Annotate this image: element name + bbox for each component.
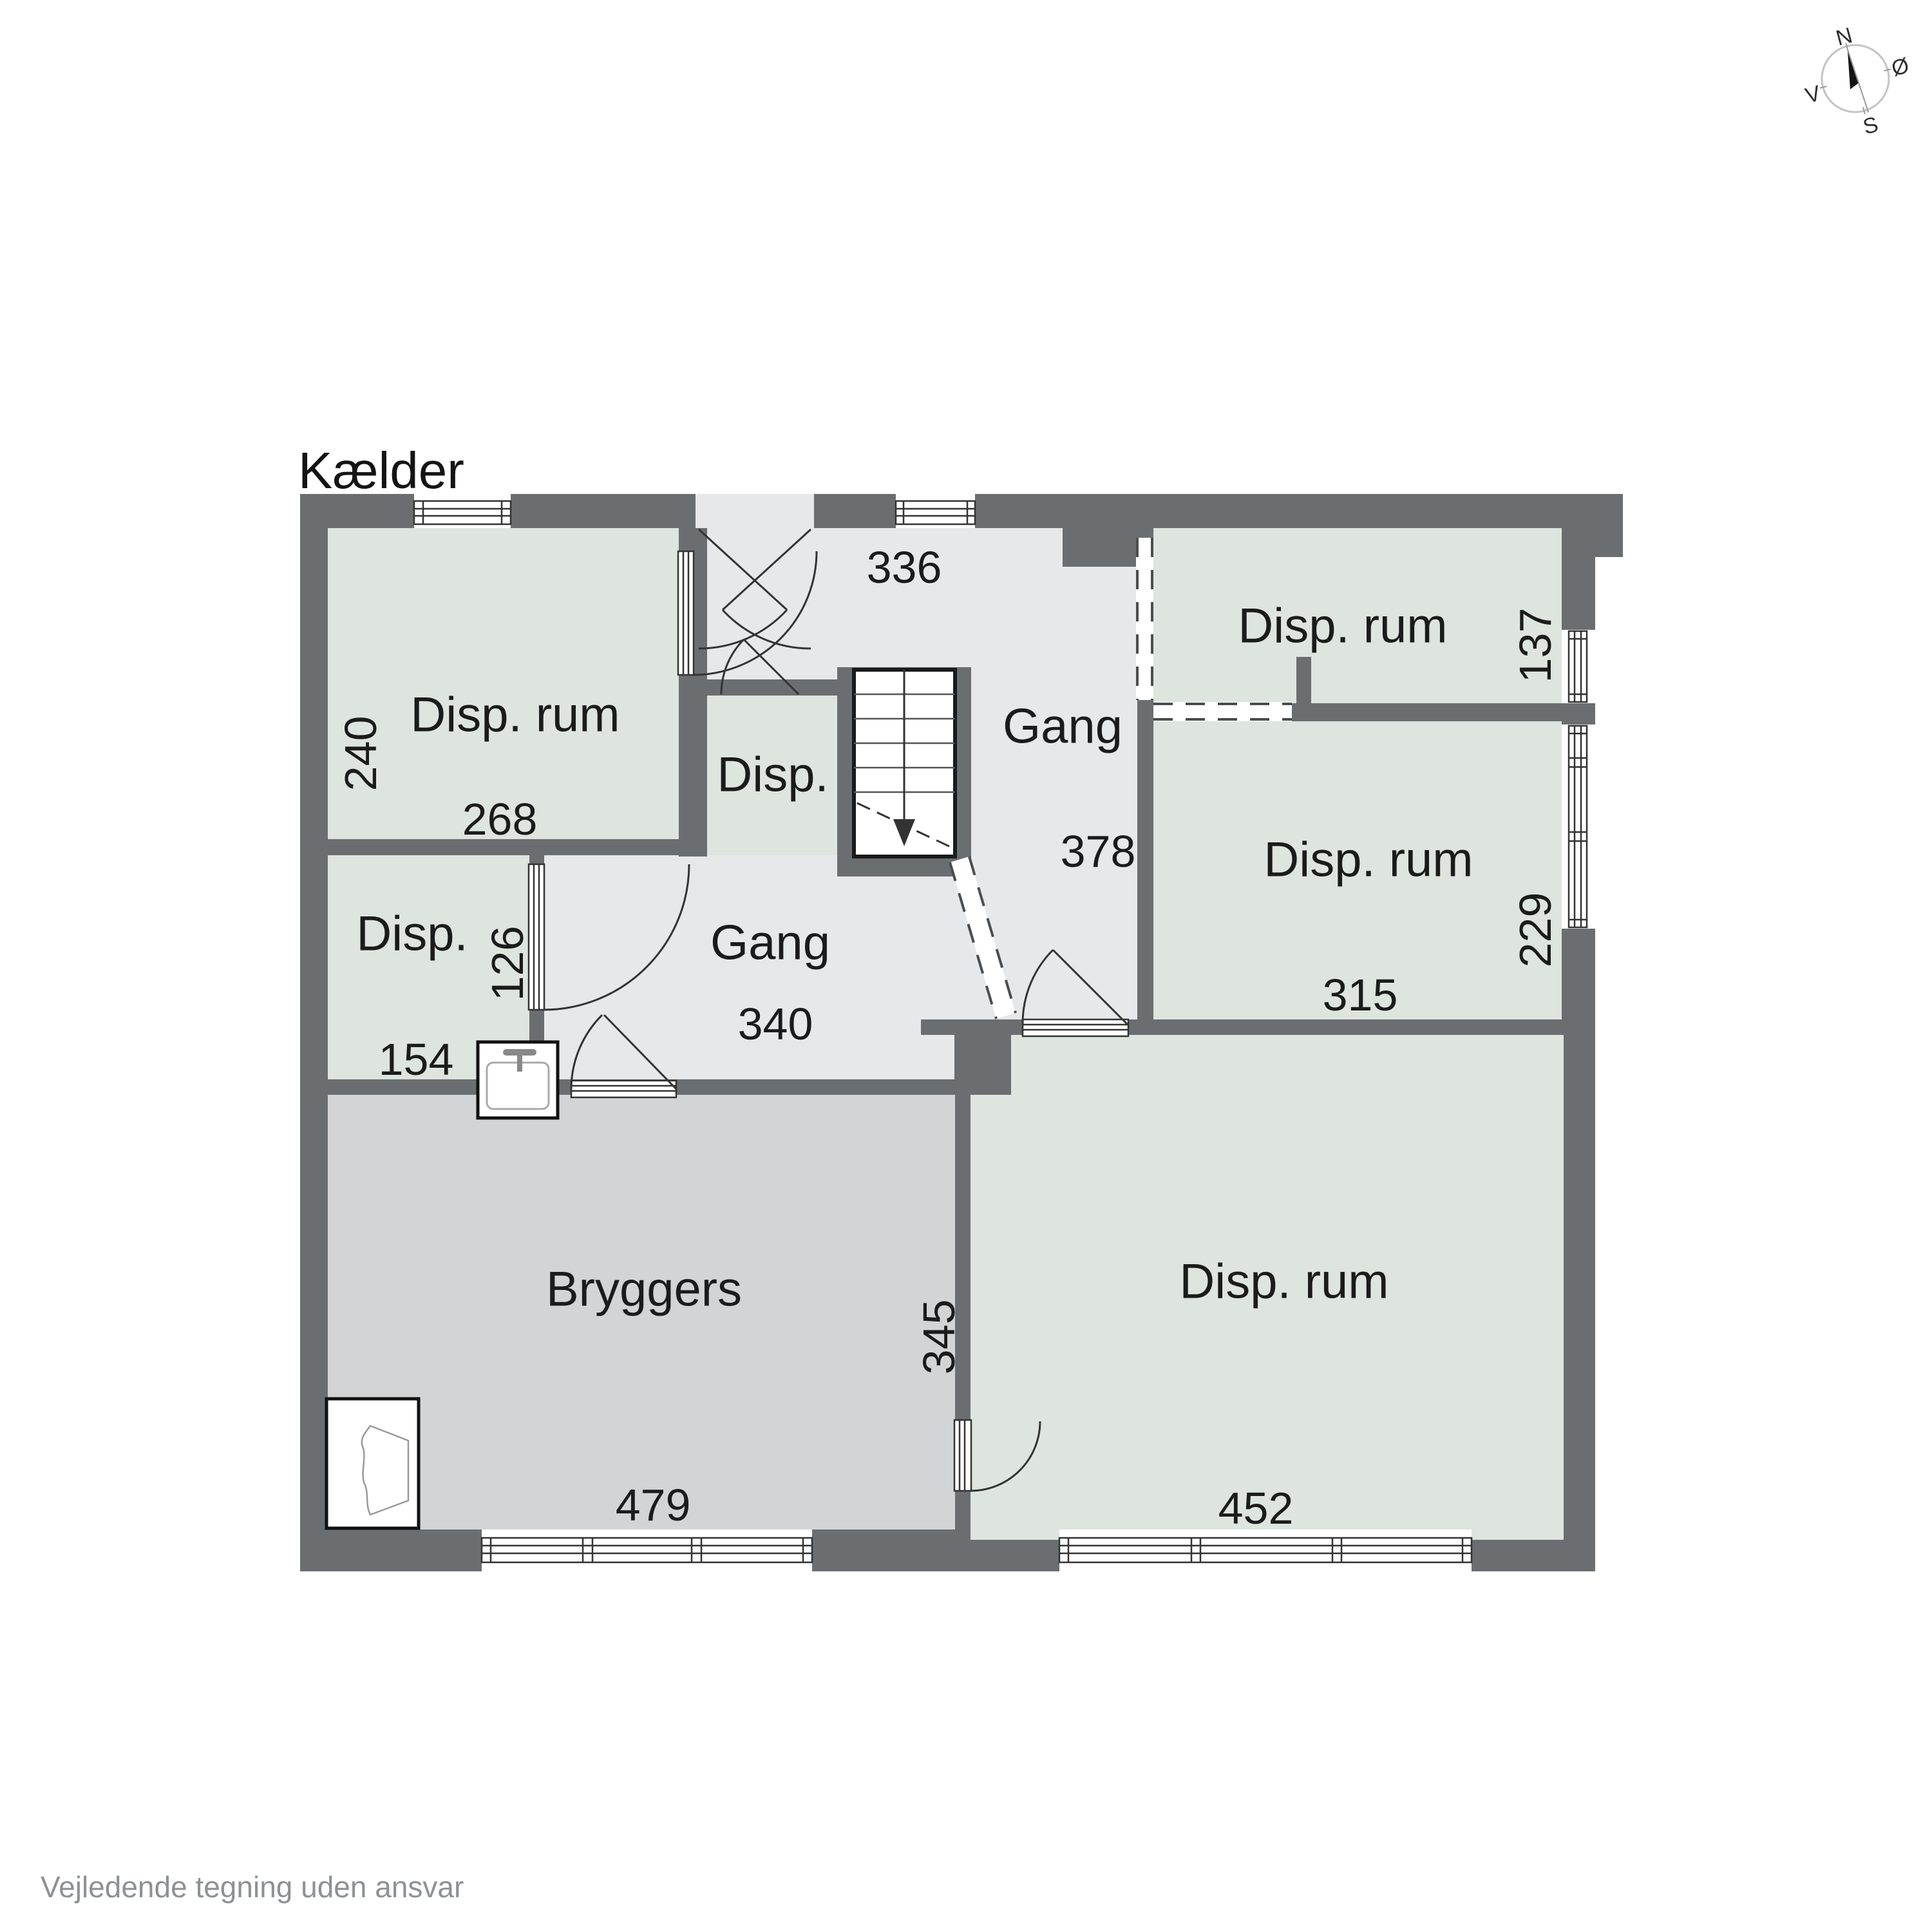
room-label-gang-upper: Gang — [1003, 699, 1122, 755]
room-label-disp-left: Disp. — [356, 906, 468, 962]
compass-east-label: Ø — [1889, 53, 1911, 82]
dim-479: 479 — [616, 1479, 691, 1531]
dim-154: 154 — [379, 1034, 454, 1085]
dim-336: 336 — [867, 542, 942, 593]
dim-345: 345 — [913, 1300, 965, 1375]
room-label-bryggers: Bryggers — [546, 1262, 742, 1318]
room-label-disp-small: Disp. — [717, 747, 828, 803]
fireplace-icon — [327, 1399, 419, 1528]
dim-268: 268 — [462, 793, 538, 845]
compass-north-label: N — [1833, 23, 1855, 51]
entrance-opening — [696, 494, 814, 528]
page-title: Kælder — [298, 441, 464, 500]
dim-340: 340 — [738, 998, 813, 1050]
window-icon — [1059, 1529, 1472, 1571]
disclaimer-text: Vejledende tegning uden ansvar — [41, 1870, 464, 1904]
dim-452: 452 — [1218, 1482, 1294, 1534]
floorplan-drawing: N Ø S V — [0, 0, 1932, 1932]
dim-126: 126 — [482, 926, 533, 1001]
dim-229: 229 — [1510, 893, 1561, 968]
staircase — [854, 670, 955, 857]
window-icon — [896, 494, 975, 528]
floorplan-canvas: N Ø S V Kælder Disp. rum 240 268 Disp. D… — [0, 0, 1932, 1932]
room-label-disp-rum-top-right: Disp. rum — [1238, 598, 1447, 654]
room-floor-disp-rum-top-left — [328, 528, 679, 839]
room-label-disp-rum-mid-right: Disp. rum — [1264, 832, 1473, 888]
dim-378: 378 — [1061, 826, 1136, 877]
compass-rose: N Ø S V — [1790, 11, 1924, 152]
room-label-gang-lower: Gang — [710, 915, 830, 971]
dim-315: 315 — [1323, 969, 1398, 1021]
room-label-disp-rum-bottom-right: Disp. rum — [1179, 1254, 1388, 1310]
dashed-opening-horizontal — [1153, 702, 1292, 721]
window-icon — [482, 1529, 812, 1571]
window-icon — [1562, 724, 1595, 929]
compass-west-label: V — [1803, 81, 1823, 109]
dim-240: 240 — [335, 716, 386, 791]
dashed-opening-vertical — [1136, 538, 1153, 700]
window-icon — [1562, 630, 1595, 703]
sink-icon — [478, 1042, 558, 1118]
dim-137: 137 — [1510, 608, 1561, 683]
room-label-disp-rum-top-left: Disp. rum — [410, 687, 620, 743]
compass-south-label: S — [1861, 112, 1881, 140]
